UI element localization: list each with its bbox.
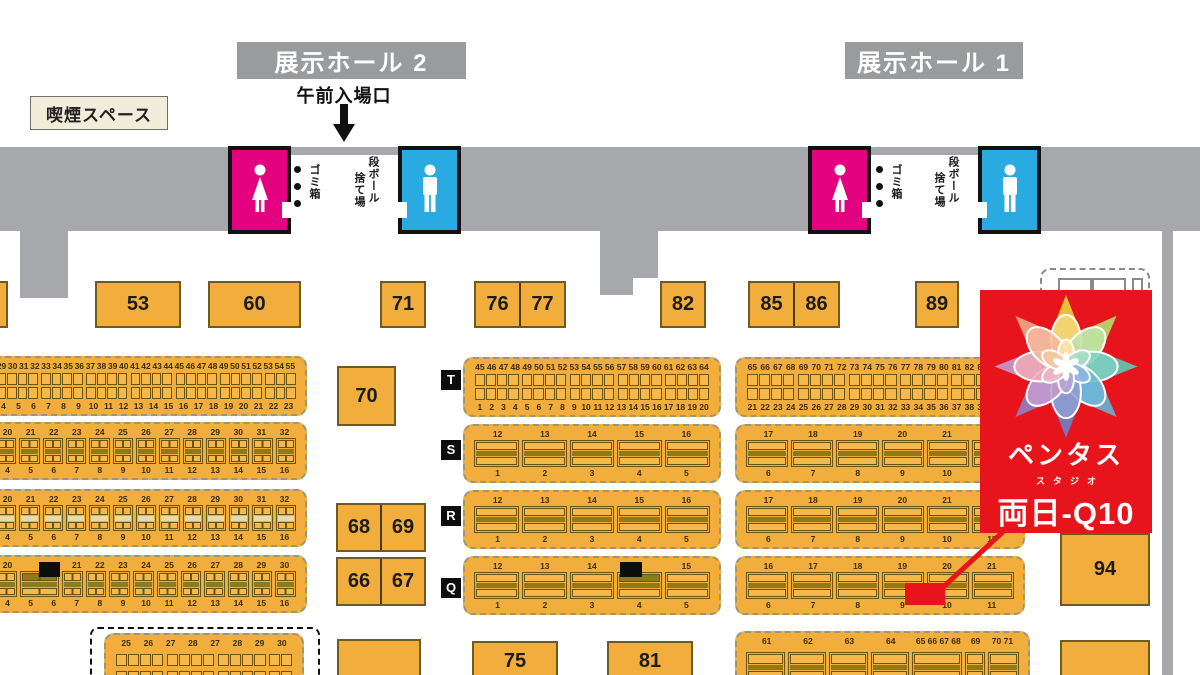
exhibitor-name: ペンタス [1008, 435, 1124, 472]
booth-unlabeled [1060, 640, 1150, 675]
door-notch [862, 202, 871, 218]
female-restroom-icon [827, 164, 853, 216]
cardboard-label-hall2: 段ボール [365, 156, 381, 204]
booth-unlabeled [337, 639, 421, 675]
trash-bin-dots [876, 166, 884, 217]
booth-75: 75 [472, 641, 558, 675]
wall-pillar-left [20, 231, 68, 298]
hall1-label: 展示ホール 1 [845, 42, 1023, 79]
right-wall [1162, 231, 1173, 675]
booth-76-77: 7677 [474, 281, 566, 328]
booth-71: 71 [380, 281, 426, 328]
strip-QL: 1213141512345 [463, 556, 721, 615]
female-restroom-icon [247, 164, 273, 216]
male-restroom-hall2 [398, 146, 461, 234]
female-restroom-hall2 [228, 146, 291, 234]
door-notch [398, 202, 407, 218]
door-notch [978, 202, 987, 218]
trash-bin-dots [294, 166, 302, 217]
booth-82: 82 [660, 281, 706, 328]
strip-SL: 121314151612345 [463, 424, 721, 483]
row-label-Q: Q [441, 578, 461, 598]
row-label-T: T [441, 370, 461, 390]
cardboard-label2-hall1: 捨て場 [931, 172, 947, 208]
booth-81: 81 [607, 641, 693, 675]
trash-label-hall1: ゴミ箱 [888, 164, 904, 200]
male-restroom-hall1 [978, 146, 1041, 234]
strip-QR: 16171819202167891011 [735, 556, 1025, 615]
strip-L2: 2021222324252627282930313245678910111213… [0, 422, 307, 480]
booth-94: 94 [1060, 533, 1150, 606]
trash-label-hall2: ゴミ箱 [306, 164, 322, 200]
booth-85-86: 8586 [748, 281, 840, 328]
entrance-passage-hall1 [869, 155, 978, 231]
strip-RL: 121314151612345 [463, 490, 721, 549]
smoking-space-label: 喫煙スペース [30, 96, 168, 130]
booth-pillar-marker [39, 562, 60, 577]
booth-unlabeled [0, 281, 8, 328]
strip-L3: 2021222324252627282930313245678910111213… [0, 489, 307, 547]
wall-pillar-mid-foot [600, 278, 633, 295]
male-restroom-icon [417, 164, 443, 216]
exhibition-floor-map: 展示ホール 2 展示ホール 1 喫煙スペース 午前入場口 ゴミ箱 段ボール 捨て… [0, 0, 1200, 675]
booth-pillar-marker [620, 562, 642, 577]
male-restroom-icon [997, 164, 1023, 216]
female-restroom-hall1 [808, 146, 871, 234]
pentas-logo [991, 290, 1141, 439]
hall1-label-text: 展示ホール 1 [857, 43, 1011, 78]
cardboard-label-hall1: 段ボール [945, 156, 961, 204]
wall-pillar-mid [600, 231, 658, 278]
hall2-label-text: 展示ホール 2 [274, 43, 428, 78]
exhibitor-subtitle: スタジオ [1028, 474, 1104, 487]
entrance-down-arrow [333, 104, 355, 142]
smoking-space-text: 喫煙スペース [46, 101, 152, 126]
booth-60: 60 [208, 281, 301, 328]
booth-70: 70 [337, 366, 396, 426]
row-label-R: R [441, 506, 461, 526]
exhibitor-card: ペンタス スタジオ 両日-Q10 [980, 290, 1152, 533]
door-notch [282, 202, 291, 218]
strip-TL: 4546474849505152535455565758596061626364… [463, 357, 721, 417]
strip-L5: 2526272827282930 [104, 633, 304, 675]
highlighted-booth-q10 [905, 583, 945, 605]
exhibitor-booth-number: 両日-Q10 [998, 488, 1135, 533]
booth-68-69: 6869 [336, 503, 426, 552]
cardboard-label2-hall2: 捨て場 [351, 172, 367, 208]
booth-53: 53 [95, 281, 181, 328]
strip-BR: 6162636465 66 67 686970 71 [735, 631, 1030, 675]
booth-66-67: 6667 [336, 557, 426, 606]
booth-89: 89 [915, 281, 959, 328]
hall2-label: 展示ホール 2 [237, 42, 466, 79]
strip-L1: 2930313233343536373839404142434445464748… [0, 356, 307, 416]
row-label-S: S [441, 440, 461, 460]
